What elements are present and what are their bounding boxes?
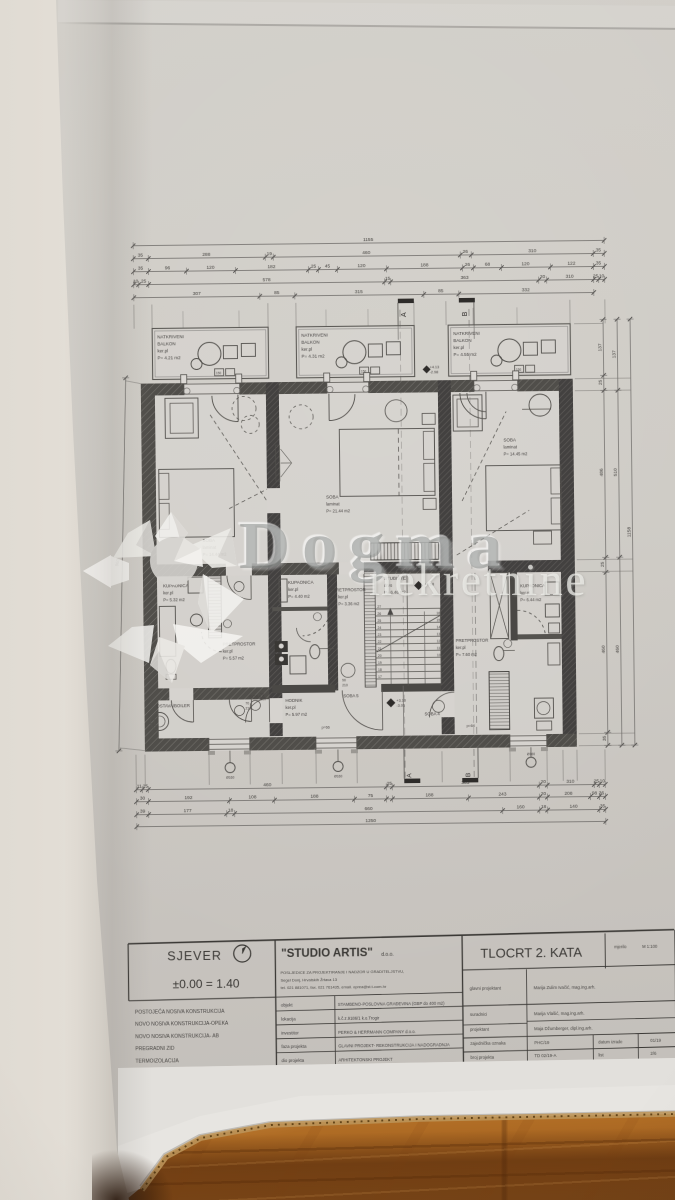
svg-text:Segel Donj, Hrvatskih Žrtava 1: Segel Donj, Hrvatskih Žrtava 13 [281, 977, 338, 983]
svg-text:01/19: 01/19 [650, 1038, 661, 1043]
svg-text:315: 315 [355, 289, 363, 295]
svg-text:22: 22 [378, 640, 382, 644]
svg-text:11: 11 [437, 646, 441, 650]
svg-text:BALKON: BALKON [453, 338, 471, 343]
svg-text:-3.05: -3.05 [396, 704, 405, 708]
svg-text:578: 578 [263, 277, 271, 283]
svg-text:70: 70 [245, 701, 249, 705]
svg-text:KUPAONICA: KUPAONICA [520, 583, 545, 588]
svg-text:PERKO & HERRMANN COMPANY d.o.o: PERKO & HERRMANN COMPANY d.o.o. [338, 1029, 416, 1035]
svg-text:150: 150 [216, 371, 222, 375]
svg-text:17: 17 [378, 675, 382, 679]
svg-text:460: 460 [601, 645, 607, 653]
svg-text:HODNIK: HODNIK [285, 698, 302, 703]
svg-text:PRETPROSTOR: PRETPROSTOR [223, 641, 256, 646]
svg-text:19: 19 [267, 251, 273, 257]
svg-text:24: 24 [378, 626, 382, 630]
svg-text:18: 18 [541, 804, 547, 810]
svg-text:15: 15 [436, 618, 440, 622]
svg-text:310: 310 [528, 248, 536, 254]
svg-text:ker.pl: ker.pl [157, 348, 168, 353]
svg-text:310: 310 [566, 779, 574, 785]
svg-text:11: 11 [137, 784, 142, 790]
svg-text:P= 4.21 m2: P= 4.21 m2 [157, 355, 181, 360]
svg-text:460: 460 [263, 782, 271, 788]
svg-text:10: 10 [599, 274, 605, 280]
svg-text:NATKRIVENI: NATKRIVENI [301, 333, 328, 338]
svg-text:2/6: 2/6 [650, 1051, 657, 1056]
svg-text:85: 85 [438, 288, 444, 294]
svg-text:90: 90 [342, 678, 346, 682]
svg-text:+4.13: +4.13 [430, 365, 440, 369]
svg-text:P= 3.36 m2: P= 3.36 m2 [338, 601, 360, 606]
svg-text:laminat: laminat [503, 444, 517, 449]
svg-text:160: 160 [517, 805, 525, 811]
svg-text:P= 5.97 m2: P= 5.97 m2 [285, 712, 307, 717]
svg-text:investitor: investitor [281, 1030, 299, 1035]
svg-text:80: 80 [446, 720, 450, 724]
svg-text:10: 10 [437, 653, 441, 657]
svg-text:307: 307 [193, 291, 201, 297]
svg-text:+3.10: +3.10 [396, 699, 406, 703]
svg-text:25: 25 [311, 264, 317, 270]
svg-text:A: A [401, 312, 408, 317]
svg-text:P= 14.44 m2: P= 14.44 m2 [203, 552, 228, 557]
svg-text:210: 210 [342, 683, 348, 687]
svg-text:TLOCRT 2. KATA: TLOCRT 2. KATA [480, 945, 582, 961]
svg-text:list: list [598, 1052, 604, 1057]
svg-text:18: 18 [228, 808, 234, 814]
svg-text:20: 20 [540, 274, 546, 280]
svg-text:35: 35 [600, 804, 606, 810]
svg-text:P= 4.40 m2: P= 4.40 m2 [288, 594, 310, 599]
svg-text:SOBA 5: SOBA 5 [343, 693, 359, 698]
svg-text:SOBA: SOBA [503, 437, 516, 442]
svg-text:-2.98: -2.98 [430, 370, 439, 374]
svg-text:310: 310 [566, 274, 574, 280]
svg-text:25: 25 [377, 619, 381, 623]
svg-text:BALKON: BALKON [301, 340, 319, 345]
svg-text:TD 02/19-A: TD 02/19-A [534, 1053, 556, 1058]
svg-text:75: 75 [368, 793, 374, 799]
svg-text:glavni projektant: glavni projektant [470, 986, 502, 991]
svg-text:NATKRIVENI: NATKRIVENI [157, 334, 184, 339]
svg-text:PREGRADNI ZID: PREGRADNI ZID [135, 1046, 175, 1052]
svg-text:TERMOIZOLACIJA: TERMOIZOLACIJA [135, 1058, 179, 1064]
svg-text:Ø160: Ø160 [527, 752, 535, 756]
svg-text:NATKRIVENI: NATKRIVENI [453, 331, 480, 336]
svg-text:486: 486 [599, 468, 605, 476]
svg-text:SOBA: SOBA [326, 494, 339, 499]
svg-text:ker.pl: ker.pl [453, 345, 464, 350]
svg-text:P= 4.55 m2: P= 4.55 m2 [453, 352, 477, 357]
svg-text:140: 140 [570, 804, 578, 810]
svg-text:120: 120 [206, 265, 214, 271]
svg-text:ker.pl: ker.pl [301, 347, 312, 352]
svg-text:35: 35 [602, 735, 608, 741]
svg-text:36: 36 [599, 791, 605, 797]
svg-text:dio projekta: dio projekta [281, 1058, 304, 1063]
svg-text:STUBIŠTE: STUBIŠTE [384, 575, 406, 581]
svg-text:OSTAVA/BOILER: OSTAVA/BOILER [156, 703, 189, 708]
svg-text:ARHITEKTONSKI PROJEKT: ARHITEKTONSKI PROJEKT [338, 1057, 393, 1063]
svg-text:182: 182 [267, 264, 275, 270]
svg-text:1250: 1250 [365, 818, 376, 824]
svg-text:288: 288 [202, 252, 210, 258]
svg-text:M 1:100: M 1:100 [642, 944, 658, 949]
svg-text:18: 18 [378, 668, 382, 672]
svg-text:Ø160: Ø160 [226, 776, 234, 780]
svg-text:208: 208 [564, 791, 572, 797]
svg-text:zajednička oznaka: zajednička oznaka [470, 1041, 506, 1046]
svg-text:GLAVNI PROJEKT- REKONSTRUKCIJA: GLAVNI PROJEKT- REKONSTRUKCIJA I NADOGRA… [338, 1042, 450, 1048]
svg-text:p=64: p=64 [467, 724, 475, 728]
svg-text:KUPAONICA: KUPAONICA [163, 583, 189, 588]
svg-text:lokacija: lokacija [281, 1016, 296, 1021]
svg-text:25: 25 [598, 379, 604, 385]
svg-text:datum izrade: datum izrade [598, 1039, 623, 1044]
svg-text:B: B [465, 773, 472, 777]
svg-text:1158: 1158 [626, 527, 632, 538]
svg-text:10: 10 [133, 279, 139, 285]
svg-text:35: 35 [596, 248, 602, 254]
svg-text:"STUDIO ARTIS": "STUDIO ARTIS" [281, 947, 373, 960]
svg-text:POSLJEDICE ZA PROJEKTIRANJE I: POSLJEDICE ZA PROJEKTIRANJE I NADZOR U G… [280, 969, 404, 975]
svg-text:35: 35 [138, 253, 144, 259]
svg-text:35: 35 [138, 266, 144, 272]
svg-text:ker.pl: ker.pl [520, 590, 530, 595]
svg-text:25: 25 [387, 781, 393, 787]
svg-text:A: A [406, 773, 413, 778]
svg-text:30: 30 [140, 796, 146, 802]
svg-text:drvo: drvo [384, 583, 393, 588]
svg-text:460: 460 [362, 250, 370, 256]
svg-text:12: 12 [437, 639, 441, 643]
svg-text:SOBA: SOBA [203, 538, 216, 543]
svg-text:660: 660 [365, 806, 373, 812]
svg-text:P= 7.60 m2: P= 7.60 m2 [456, 652, 478, 657]
svg-text:faza projekta: faza projekta [281, 1044, 307, 1049]
svg-text:120: 120 [521, 261, 529, 267]
svg-text:122: 122 [567, 261, 575, 267]
svg-text:k.č.z.9186/1 k.o.Trogir: k.č.z.9186/1 k.o.Trogir [338, 1015, 380, 1020]
svg-text:210: 210 [245, 706, 251, 710]
svg-text:20: 20 [541, 791, 547, 797]
svg-text:460: 460 [615, 645, 621, 653]
svg-text:ker.pl: ker.pl [288, 587, 298, 592]
svg-text:mjerilo: mjerilo [614, 944, 627, 949]
svg-text:BALKON: BALKON [157, 341, 175, 346]
svg-text:P= 5.32 m2: P= 5.32 m2 [163, 597, 185, 602]
svg-text:ker.pl: ker.pl [285, 705, 295, 710]
svg-text:188: 188 [310, 794, 318, 800]
svg-text:19: 19 [378, 661, 382, 665]
svg-text:Marija Vlašić, mag.ing.arh.: Marija Vlašić, mag.ing.arh. [534, 1011, 585, 1017]
svg-text:ker.pl: ker.pl [456, 645, 466, 650]
svg-text:96: 96 [165, 266, 171, 272]
svg-text:ker.pl: ker.pl [163, 590, 173, 595]
svg-text:26: 26 [463, 249, 469, 255]
svg-text:objekt: objekt [281, 1002, 294, 1007]
svg-text:98: 98 [592, 791, 598, 797]
svg-text:177: 177 [184, 808, 192, 814]
svg-text:P= 6.46 m2: P= 6.46 m2 [384, 590, 406, 595]
svg-text:±0.00 = 1.40: ±0.00 = 1.40 [172, 977, 239, 992]
svg-text:ker.pl: ker.pl [223, 649, 233, 654]
svg-text:B: B [462, 311, 469, 316]
svg-text:NOVO NOSIVA KONSTRUKCIJA-OPEKA: NOVO NOSIVA KONSTRUKCIJA-OPEKA [135, 1021, 229, 1028]
svg-text:suradnici: suradnici [470, 1012, 487, 1017]
svg-text:45: 45 [325, 264, 331, 270]
svg-text:16: 16 [436, 611, 440, 615]
svg-text:broj projekta: broj projekta [470, 1055, 494, 1060]
svg-text:26: 26 [465, 262, 471, 268]
svg-text:PRETPROSTOR: PRETPROSTOR [333, 587, 366, 592]
svg-text:960: 960 [114, 558, 120, 567]
svg-text:188: 188 [425, 793, 433, 799]
svg-text:39: 39 [140, 809, 146, 815]
svg-text:188: 188 [420, 263, 428, 269]
svg-text:+4.58: +4.58 [424, 581, 435, 586]
svg-text:p=66: p=66 [322, 726, 330, 730]
svg-text:363: 363 [461, 275, 469, 281]
svg-text:137: 137 [597, 343, 603, 351]
svg-text:243: 243 [498, 792, 506, 798]
svg-text:20: 20 [378, 654, 382, 658]
svg-text:23: 23 [378, 633, 382, 637]
svg-text:192: 192 [184, 795, 192, 801]
svg-text:PHC/19: PHC/19 [534, 1040, 550, 1045]
svg-text:Marija Zulim Ivačić, mag.ing.a: Marija Zulim Ivačić, mag.ing.arh. [534, 985, 596, 991]
svg-text:tel. 021 881071, fax. 021 7614: tel. 021 881071, fax. 021 761435, email.… [281, 984, 387, 990]
svg-text:laminat: laminat [326, 501, 340, 506]
svg-text:108: 108 [248, 795, 256, 801]
svg-text:KUPAONICA: KUPAONICA [288, 580, 314, 585]
svg-text:510: 510 [613, 468, 619, 476]
svg-text:NOVO NOSIVA KONSTRUKCIJA- AB: NOVO NOSIVA KONSTRUKCIJA- AB [135, 1033, 220, 1040]
svg-text:25: 25 [593, 274, 599, 280]
svg-text:P= 4.31 m2: P= 4.31 m2 [301, 354, 325, 359]
svg-text:10: 10 [600, 779, 606, 785]
svg-text:332: 332 [522, 287, 530, 293]
svg-text:68: 68 [485, 262, 491, 268]
svg-text:Ø160: Ø160 [334, 774, 342, 778]
svg-text:SOBA 6: SOBA 6 [249, 694, 265, 699]
svg-text:27: 27 [377, 605, 381, 609]
svg-text:STAMBENO-POSLOVNA GRAĐEVINA (G: STAMBENO-POSLOVNA GRAĐEVINA (GBP do 400 … [338, 1001, 445, 1007]
svg-text:PRETPROSTOR: PRETPROSTOR [456, 638, 489, 643]
svg-text:35: 35 [596, 261, 602, 267]
svg-text:25: 25 [594, 779, 600, 785]
svg-text:25: 25 [600, 561, 606, 567]
svg-text:15: 15 [385, 276, 391, 282]
svg-text:ker.pl: ker.pl [338, 594, 348, 599]
svg-text:d.o.o.: d.o.o. [381, 952, 394, 958]
svg-text:P= 21.44 m2: P= 21.44 m2 [326, 508, 351, 513]
svg-text:14: 14 [437, 625, 441, 629]
svg-text:120: 120 [357, 263, 365, 269]
svg-text:P= 14.45 m2: P= 14.45 m2 [504, 451, 529, 456]
svg-text:P= 6.44 m2: P= 6.44 m2 [520, 597, 542, 602]
svg-text:projektant: projektant [470, 1027, 490, 1032]
svg-text:137: 137 [611, 350, 617, 358]
svg-text:21: 21 [378, 647, 382, 651]
svg-text:POSTOJEĆA NOSIVA KONSTRUKCIJA: POSTOJEĆA NOSIVA KONSTRUKCIJA [135, 1008, 225, 1016]
svg-text:20: 20 [541, 779, 547, 785]
svg-text:P= 5.57 m2: P= 5.57 m2 [223, 655, 245, 660]
svg-text:210: 210 [446, 725, 452, 729]
svg-text:1155: 1155 [363, 237, 374, 243]
svg-text:Maja Džumberger, dipl.ing.arh.: Maja Džumberger, dipl.ing.arh. [534, 1026, 593, 1032]
svg-text:SJEVER: SJEVER [167, 949, 222, 964]
svg-text:25: 25 [141, 279, 147, 285]
svg-text:26: 26 [377, 612, 381, 616]
svg-text:laminat: laminat [203, 545, 217, 550]
svg-text:13: 13 [437, 632, 441, 636]
svg-text:85: 85 [274, 290, 280, 296]
